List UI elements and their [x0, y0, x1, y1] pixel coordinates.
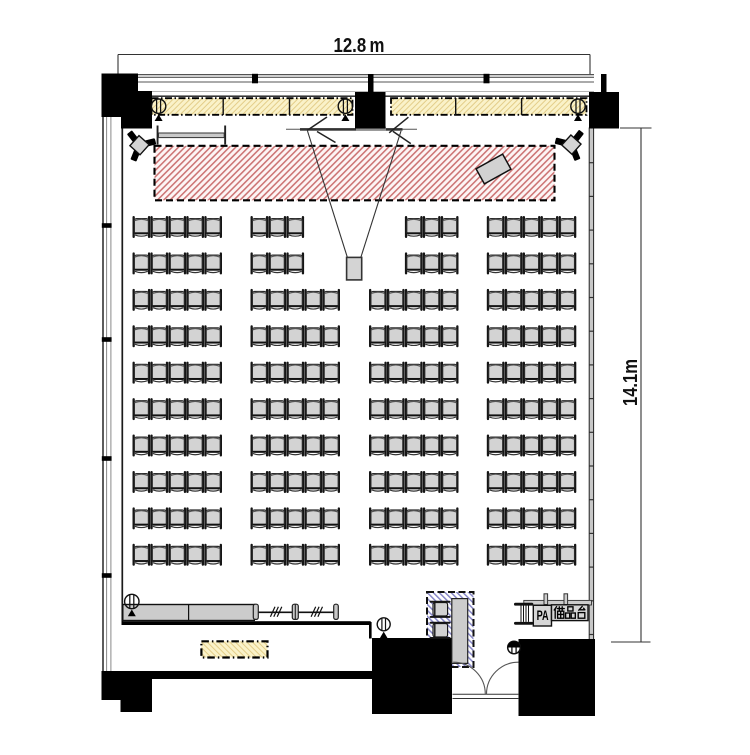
svg-text:PA: PA: [537, 608, 549, 623]
svg-text:12.8 m: 12.8 m: [334, 34, 385, 57]
svg-text:14.1m: 14.1m: [619, 359, 642, 406]
